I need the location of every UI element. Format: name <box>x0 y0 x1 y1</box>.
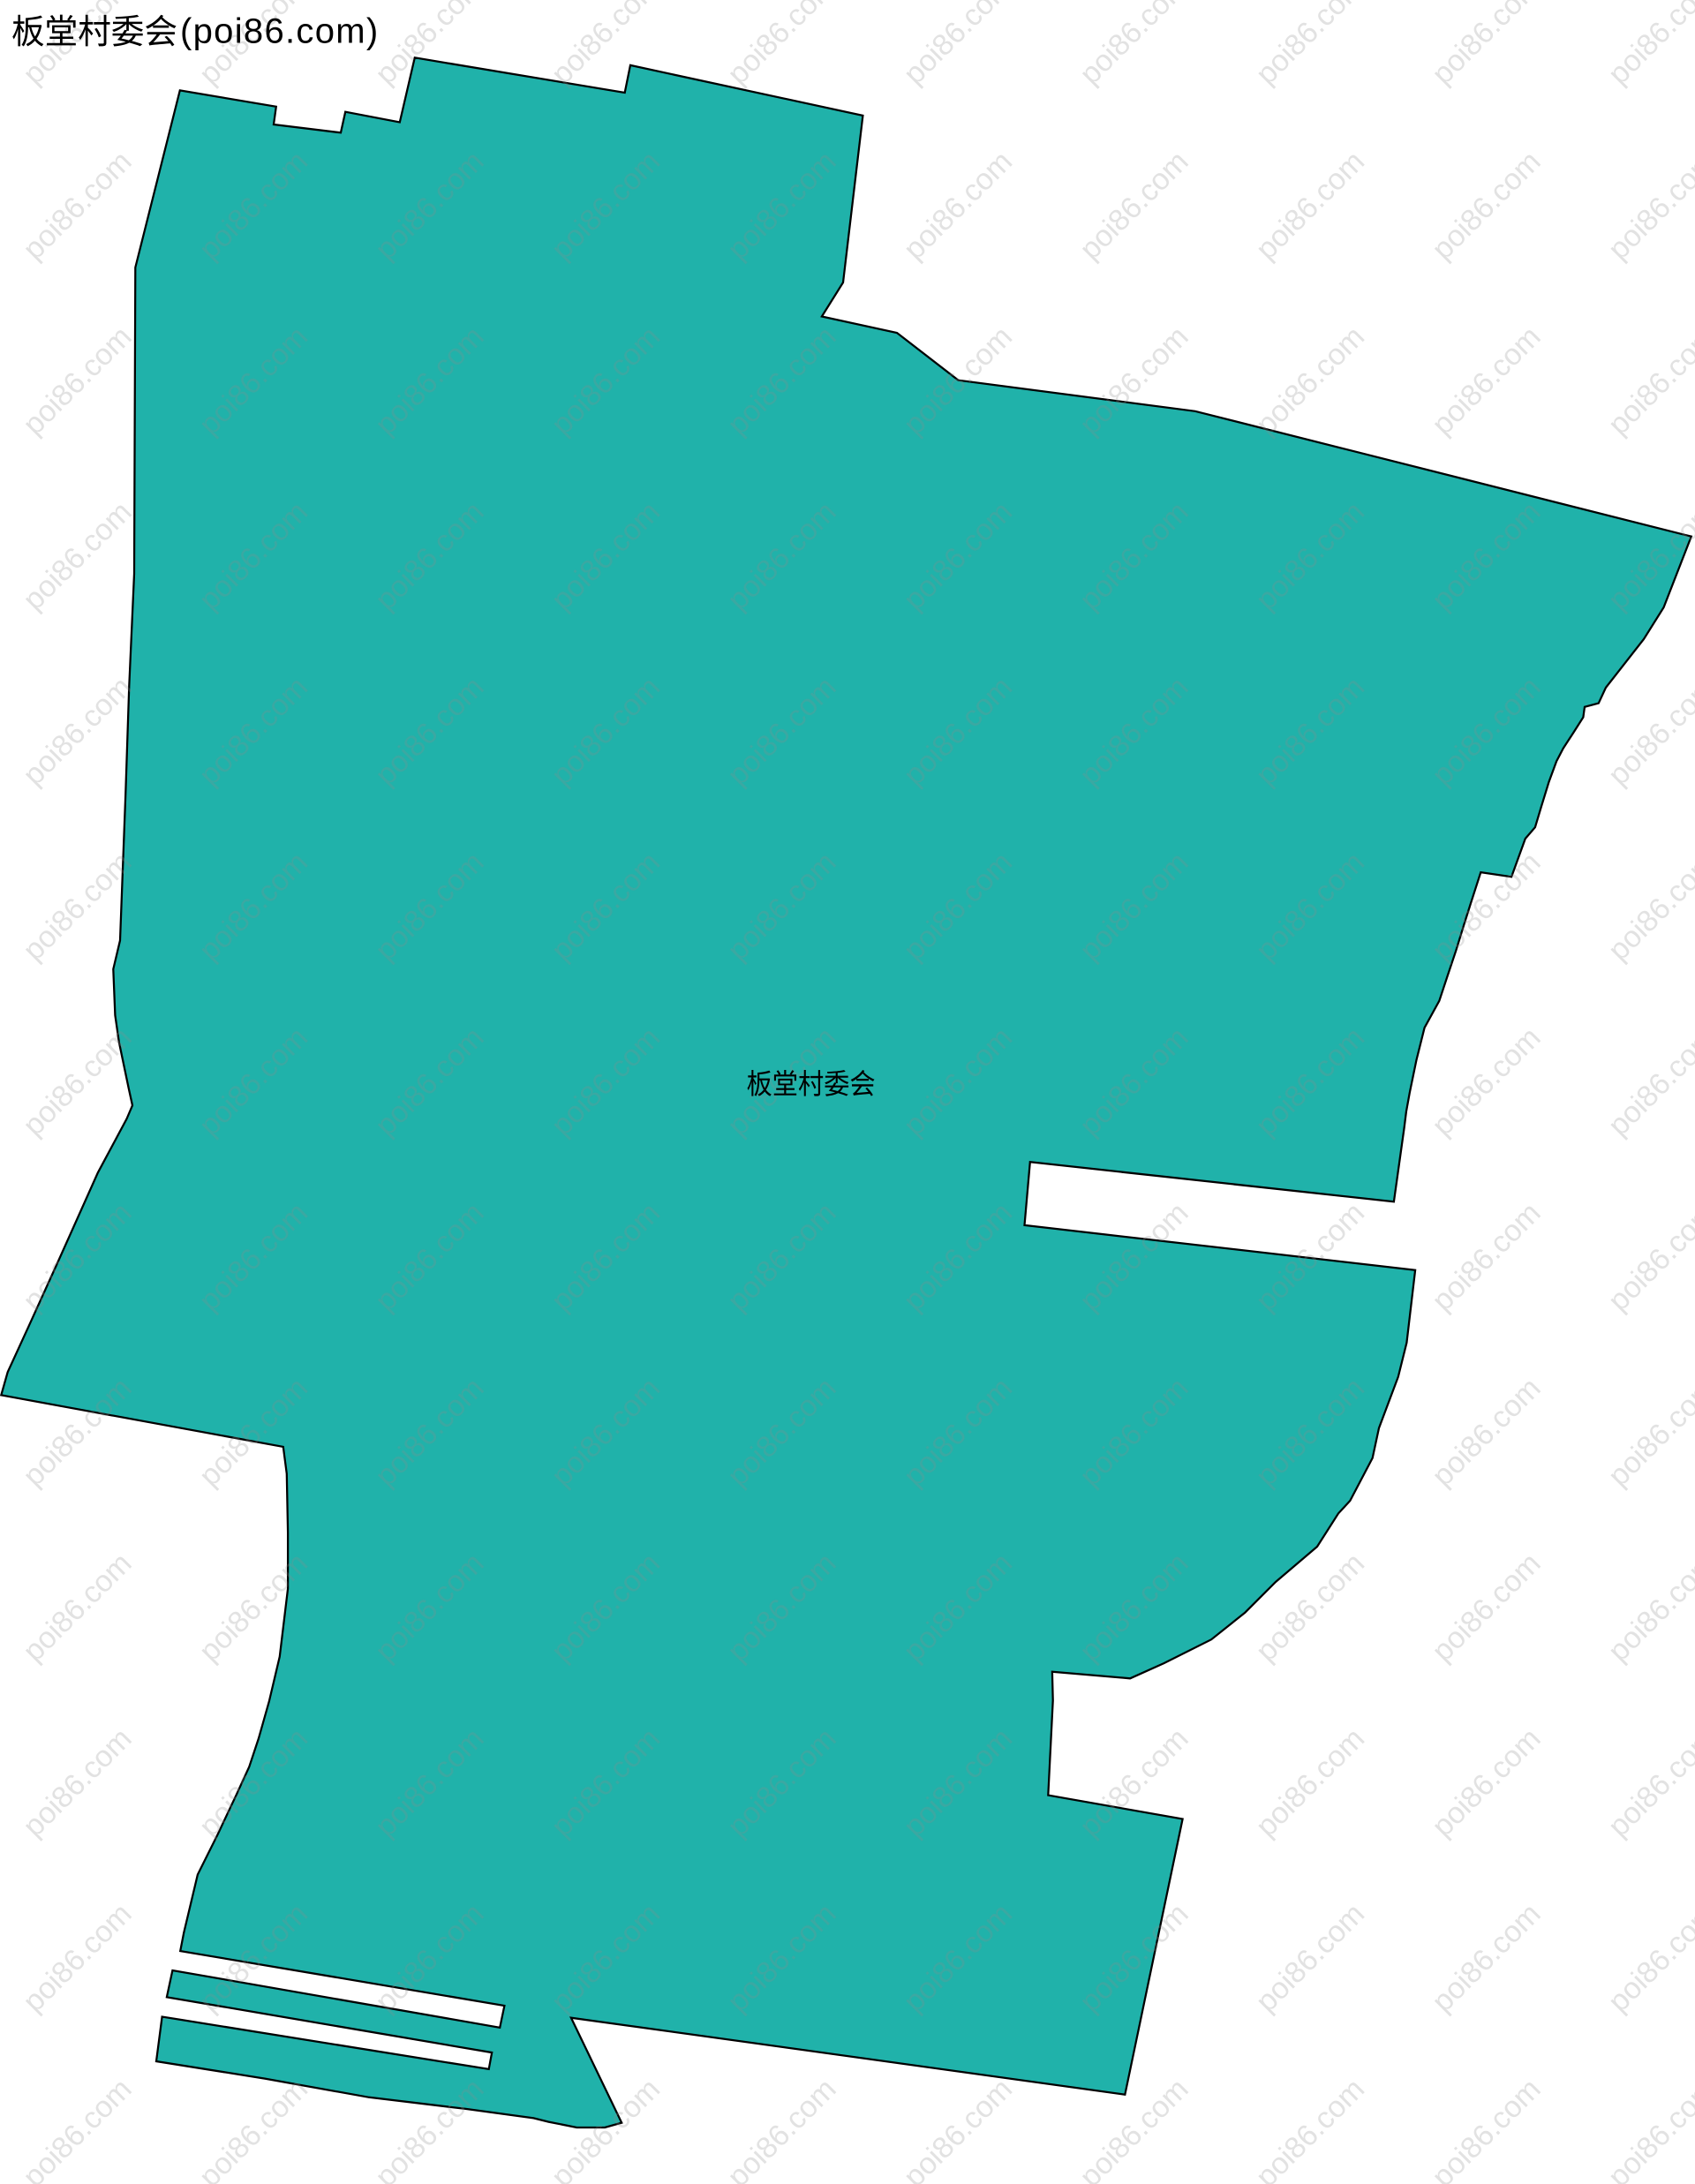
svg-text:poi86.com: poi86.com <box>1601 670 1695 792</box>
svg-text:poi86.com: poi86.com <box>1426 1196 1548 1318</box>
svg-text:poi86.com: poi86.com <box>17 320 139 441</box>
svg-text:poi86.com: poi86.com <box>721 2072 843 2184</box>
svg-text:poi86.com: poi86.com <box>1249 1897 1371 2019</box>
svg-text:poi86.com: poi86.com <box>1601 1371 1695 1493</box>
svg-text:poi86.com: poi86.com <box>897 0 1019 91</box>
svg-text:poi86.com: poi86.com <box>17 495 139 617</box>
svg-text:poi86.com: poi86.com <box>1249 0 1371 91</box>
svg-text:poi86.com: poi86.com <box>1249 320 1371 441</box>
svg-text:poi86.com: poi86.com <box>17 2072 139 2184</box>
svg-text:poi86.com: poi86.com <box>1426 320 1548 441</box>
svg-text:poi86.com: poi86.com <box>1601 1196 1695 1318</box>
svg-text:poi86.com: poi86.com <box>1601 846 1695 968</box>
svg-text:poi86.com: poi86.com <box>1601 145 1695 267</box>
svg-text:poi86.com: poi86.com <box>721 0 843 91</box>
svg-text:poi86.com: poi86.com <box>1426 1721 1548 1843</box>
svg-text:poi86.com: poi86.com <box>1073 0 1195 91</box>
svg-text:poi86.com: poi86.com <box>17 1897 139 2019</box>
svg-text:poi86.com: poi86.com <box>1601 1721 1695 1843</box>
svg-text:poi86.com: poi86.com <box>1426 2072 1548 2184</box>
svg-text:poi86.com: poi86.com <box>17 145 139 267</box>
svg-text:poi86.com: poi86.com <box>1249 1721 1371 1843</box>
svg-text:poi86.com: poi86.com <box>1249 2072 1371 2184</box>
svg-text:poi86.com: poi86.com <box>1426 1547 1548 1668</box>
svg-text:poi86.com: poi86.com <box>1601 1020 1695 1142</box>
svg-text:poi86.com: poi86.com <box>1601 1547 1695 1668</box>
svg-text:poi86.com: poi86.com <box>1601 2072 1695 2184</box>
svg-text:poi86.com: poi86.com <box>17 1020 139 1142</box>
svg-text:poi86.com: poi86.com <box>1426 1897 1548 2019</box>
svg-text:poi86.com: poi86.com <box>1249 145 1371 267</box>
svg-text:poi86.com: poi86.com <box>1601 1897 1695 2019</box>
svg-text:poi86.com: poi86.com <box>17 670 139 792</box>
svg-text:poi86.com: poi86.com <box>1073 145 1195 267</box>
svg-text:poi86.com: poi86.com <box>897 145 1019 267</box>
svg-text:poi86.com: poi86.com <box>1426 0 1548 91</box>
svg-text:poi86.com: poi86.com <box>17 1721 139 1843</box>
svg-text:poi86.com: poi86.com <box>1426 1371 1548 1493</box>
svg-text:poi86.com: poi86.com <box>1601 320 1695 441</box>
svg-text:poi86.com: poi86.com <box>1426 145 1548 267</box>
svg-text:poi86.com: poi86.com <box>1426 1020 1548 1142</box>
svg-text:(poi86.com): (poi86.com) <box>180 12 380 51</box>
svg-text:poi86.com: poi86.com <box>897 2072 1019 2184</box>
svg-text:poi86.com: poi86.com <box>1601 0 1695 91</box>
svg-text:poi86.com: poi86.com <box>192 2072 314 2184</box>
svg-text:poi86.com: poi86.com <box>17 1547 139 1668</box>
